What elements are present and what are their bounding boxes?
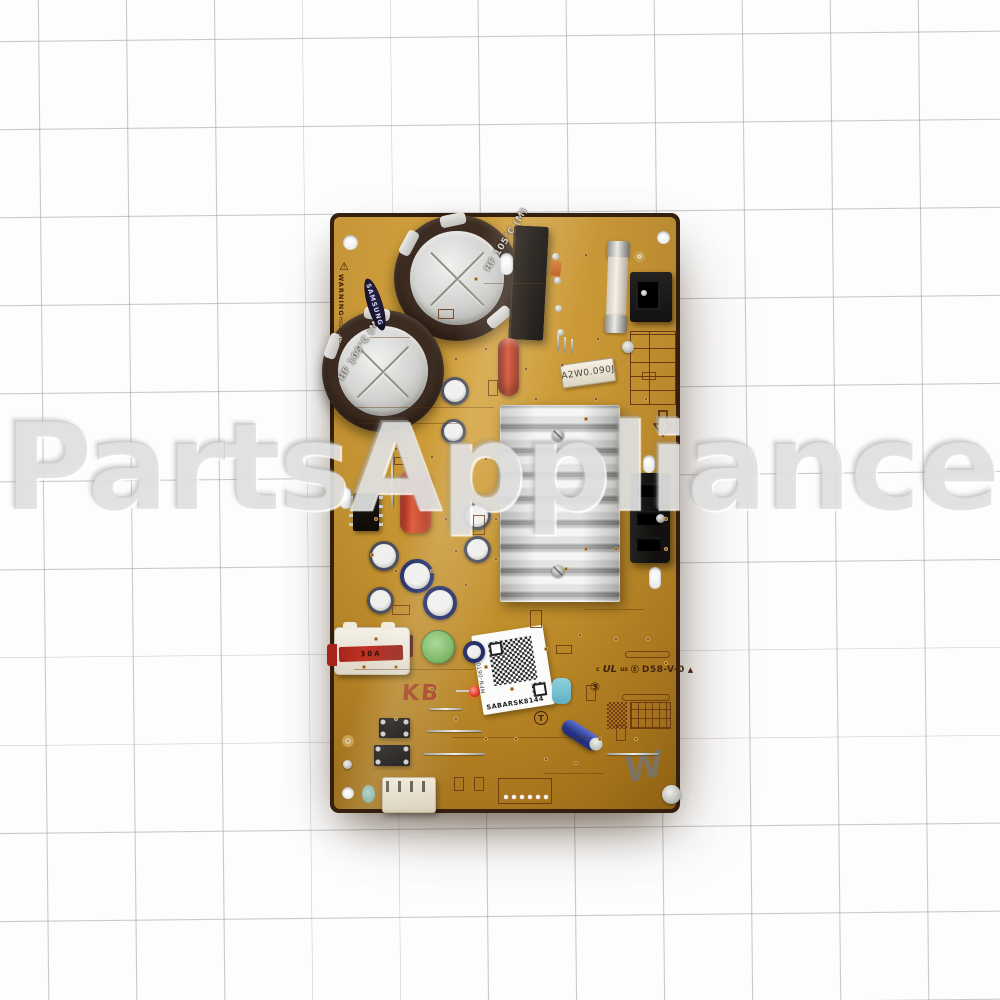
jumper-outline-silkscreen xyxy=(625,651,670,658)
led-red xyxy=(469,686,480,697)
connector-footprint xyxy=(498,778,552,804)
relay-label-band: 30A xyxy=(339,645,403,662)
fuse-cap xyxy=(604,315,627,334)
silkscreen-line xyxy=(358,423,458,424)
connector-cavity xyxy=(636,280,660,310)
silkscreen-outline xyxy=(454,777,464,791)
solder-pad xyxy=(484,737,488,741)
connector-slot xyxy=(637,537,661,551)
fuse-body xyxy=(606,257,628,318)
ul-c-mark: c xyxy=(596,666,600,673)
electrolytic-capacitor-small xyxy=(400,559,434,593)
module-lead xyxy=(557,335,559,351)
footprint-pad xyxy=(527,794,533,800)
footprint-pad xyxy=(511,794,517,800)
solder-pad xyxy=(494,557,498,561)
silkscreen-line xyxy=(584,609,644,610)
solder-pad xyxy=(596,337,600,341)
electrolytic-capacitor-small xyxy=(464,536,491,563)
spec-table-silkscreen xyxy=(630,331,676,405)
oval-slot xyxy=(643,455,655,473)
circled-t-mark: T xyxy=(534,711,548,725)
silkscreen-outline xyxy=(530,610,542,628)
jumper-wire xyxy=(429,708,462,710)
silkscreen-outline xyxy=(616,725,626,741)
dip8-ic xyxy=(353,493,379,531)
footprint-pad xyxy=(535,794,541,800)
capacitor-cyan xyxy=(552,678,571,704)
jumper-wire-vertical xyxy=(391,452,393,507)
solder-pad xyxy=(584,253,588,257)
warning-text-2: HIGH VOLT xyxy=(337,317,343,348)
solder-pad xyxy=(454,717,458,721)
ac-inlet-connector xyxy=(630,272,672,322)
solder-pad xyxy=(484,665,488,669)
oval-slot xyxy=(649,567,661,589)
electrolytic-capacitor-small xyxy=(441,377,469,405)
warning-text: WARNING xyxy=(337,274,345,317)
footprint-pad xyxy=(519,794,525,800)
solder-pad xyxy=(644,397,648,401)
jumper-wire xyxy=(607,753,659,755)
silkscreen-outline xyxy=(474,777,484,791)
solder-pad xyxy=(614,547,618,551)
solder-pad xyxy=(510,687,514,691)
electrolytic-capacitor-small xyxy=(423,586,457,620)
solder-pad xyxy=(394,665,398,669)
silkscreen-line xyxy=(354,669,474,670)
solder-pad-silver xyxy=(662,785,681,804)
connector-pin xyxy=(641,290,647,296)
solder-pad xyxy=(614,637,618,641)
electrolytic-capacitor-small xyxy=(463,641,485,663)
solder-pad xyxy=(574,761,578,765)
relay-tab xyxy=(327,644,337,666)
module-solder-joint xyxy=(552,253,559,260)
ul-us-mark: us xyxy=(620,666,628,673)
silkscreen-line xyxy=(544,773,604,774)
qr-code xyxy=(487,636,537,686)
footprint-pad xyxy=(503,794,509,800)
jumper-wire xyxy=(424,753,485,755)
solder-pad xyxy=(646,637,650,641)
solder-pad xyxy=(430,687,434,691)
model-code: D58-V-0 xyxy=(642,665,685,675)
cement-resistor: A2W0.090J xyxy=(560,357,617,388)
solder-pad-silver xyxy=(343,760,352,769)
solder-pad xyxy=(524,367,528,371)
samsung-logo: SAMSUNG xyxy=(360,276,390,332)
heatsink-screw xyxy=(552,565,564,577)
certification-marks: cULus Ⓔ D58-V-0 ▲ xyxy=(596,664,693,675)
brand-text: SAMSUNG xyxy=(365,282,385,326)
solder-pad xyxy=(430,569,434,573)
ceramic-capacitor-orange xyxy=(550,260,562,276)
module-solder-joint xyxy=(554,277,561,284)
wire-connector-4pin xyxy=(382,777,436,813)
silkscreen-outline xyxy=(586,685,596,701)
solder-pad xyxy=(664,547,668,551)
solder-pad xyxy=(534,397,538,401)
silkscreen-outline xyxy=(488,380,498,396)
cement-resistor-label: A2W0.090J xyxy=(561,364,616,381)
teal-pad xyxy=(362,785,375,803)
solder-pad xyxy=(664,517,668,521)
oval-slot xyxy=(500,253,513,275)
solder-pad xyxy=(514,737,518,741)
ring-pad xyxy=(634,251,645,262)
relay-label: 30A xyxy=(360,649,381,658)
warning-triangle-icon: ⚠ xyxy=(337,261,351,272)
electrolytic-capacitor-small xyxy=(367,587,394,614)
solder-pad xyxy=(544,757,548,761)
silkscreen-outline xyxy=(394,457,408,465)
solder-pad xyxy=(464,453,468,457)
solder-pad xyxy=(394,479,398,483)
solder-pad xyxy=(484,457,488,461)
silkscreen-outline xyxy=(642,372,656,380)
solder-pad-silver xyxy=(622,341,634,353)
heatsink-screw xyxy=(552,429,564,441)
pcb-board: HF 105°C (M) HF 105°C (M) xyxy=(330,213,680,813)
solder-pad xyxy=(394,717,398,721)
silkscreen-line xyxy=(484,283,544,284)
solder-pad xyxy=(594,397,598,401)
solder-pad xyxy=(634,737,638,741)
solder-pad xyxy=(394,447,398,451)
film-capacitor-red-tall xyxy=(498,338,519,396)
silkscreen-outline xyxy=(473,515,485,535)
silkscreen-outline xyxy=(392,605,410,615)
silkscreen-line xyxy=(370,337,410,338)
e-mark: Ⓔ xyxy=(631,664,639,675)
relay-bump xyxy=(343,622,357,630)
triangle-mark: ▲ xyxy=(688,666,693,674)
solder-pad xyxy=(584,547,588,551)
solder-pad xyxy=(578,633,582,637)
solder-pad xyxy=(430,455,434,459)
silkscreen-line xyxy=(452,737,592,738)
solder-pad xyxy=(598,737,602,741)
sticker-serial: SABARSK8144 xyxy=(482,694,548,712)
solder-pad xyxy=(564,567,568,571)
ring-pad xyxy=(342,735,354,747)
heatsink xyxy=(500,405,620,602)
down-arrow-icon xyxy=(653,410,673,437)
solder-pad xyxy=(560,363,564,367)
capacitor-sleeve-notch xyxy=(439,211,467,228)
solder-pad xyxy=(362,665,366,669)
solder-pad xyxy=(664,661,668,665)
solder-pad xyxy=(374,517,378,521)
qr-label-sticker: MFN-06T0H2604 SABARSK8144 xyxy=(471,625,555,715)
relay-bump xyxy=(381,622,395,630)
solder-pad xyxy=(374,637,378,641)
solder-pad xyxy=(454,357,458,361)
pcb-surface: HF 105°C (M) HF 105°C (M) xyxy=(334,217,676,809)
silkscreen-grid xyxy=(630,702,671,729)
fuse xyxy=(604,241,629,334)
connector-slot xyxy=(637,483,661,497)
ul-logo: UL xyxy=(603,664,618,675)
capacitor-vent-top xyxy=(410,231,503,324)
solder-pad xyxy=(370,553,374,557)
module-lead xyxy=(571,339,573,353)
solder-pad xyxy=(444,517,448,521)
film-capacitor-red xyxy=(400,471,431,533)
solder-pad xyxy=(394,569,398,573)
solder-pad xyxy=(584,417,588,421)
silkscreen-outline xyxy=(438,309,454,319)
silkscreen-outline xyxy=(556,645,572,654)
module-solder-joint xyxy=(557,329,564,336)
circled-t-glyph: T xyxy=(538,714,543,723)
solder-pad xyxy=(464,583,468,587)
solder-pad xyxy=(630,425,634,429)
optocoupler-2 xyxy=(374,745,410,766)
mounting-hole xyxy=(657,231,670,244)
disc-capacitor-green xyxy=(421,630,455,664)
connector-pin-slots xyxy=(386,781,432,792)
module-solder-joint xyxy=(555,305,562,312)
solder-pad xyxy=(544,647,548,651)
brand-logo-wrap: SAMSUNG xyxy=(348,277,402,331)
relay: 30A xyxy=(334,627,410,675)
solder-pad xyxy=(494,517,498,521)
module-lead xyxy=(564,337,566,353)
optocoupler-1 xyxy=(379,718,410,738)
solder-pad xyxy=(484,347,488,351)
product-photo-scene: HF 105°C (M) HF 105°C (M) xyxy=(0,0,1000,1000)
electrolytic-capacitor-tilted xyxy=(559,717,603,753)
mounting-hole xyxy=(343,235,358,250)
mounting-hole xyxy=(342,787,354,799)
oval-slot xyxy=(340,487,351,509)
jumper-outline-silkscreen xyxy=(622,694,670,701)
handwritten-w-mark: W xyxy=(624,743,664,793)
jumper-wire xyxy=(427,730,482,732)
silkscreen-line xyxy=(354,407,494,408)
footprint-pad xyxy=(543,794,549,800)
kb-silkscreen: KB xyxy=(401,681,441,706)
solder-pad xyxy=(474,277,478,281)
solder-pad xyxy=(454,549,458,553)
